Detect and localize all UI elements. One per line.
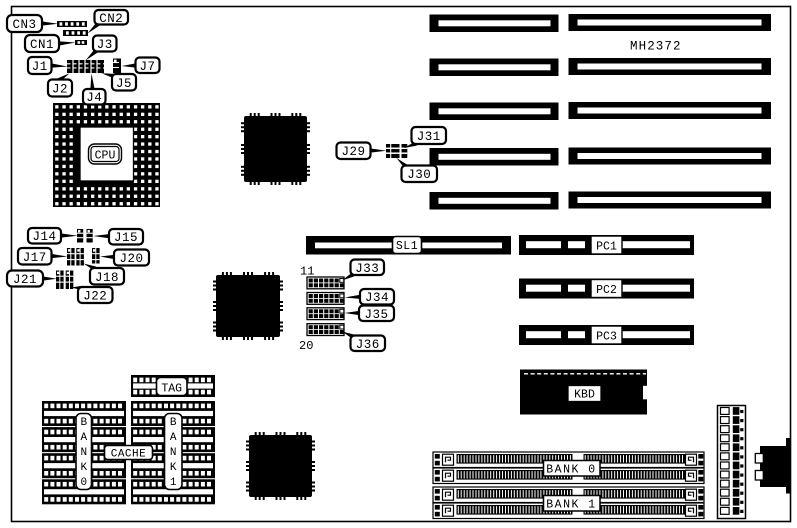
svg-text:J35: J35 [364,308,388,322]
svg-text:CN1: CN1 [30,38,54,52]
svg-text:K: K [170,462,177,474]
svg-text:20: 20 [299,339,313,353]
svg-text:J29: J29 [341,145,365,159]
svg-text:J30: J30 [407,168,431,182]
svg-text:J14: J14 [32,230,56,244]
svg-text:J15: J15 [114,231,138,245]
svg-text:PC3: PC3 [596,330,617,343]
svg-text:J31: J31 [417,130,441,144]
svg-text:J4: J4 [86,91,102,105]
svg-text:CN2: CN2 [99,12,123,26]
svg-text:J33: J33 [355,262,379,276]
svg-text:J3: J3 [97,38,113,52]
svg-text:PC1: PC1 [596,240,617,253]
svg-text:N: N [170,447,177,459]
svg-text:N: N [80,447,87,459]
svg-text:B: B [170,417,177,429]
svg-text:J7: J7 [139,60,155,74]
svg-text:J36: J36 [356,338,380,352]
svg-text:A: A [170,432,177,444]
svg-text:BANK 1: BANK 1 [546,499,596,512]
svg-text:J22: J22 [83,290,107,304]
svg-text:J34: J34 [365,291,389,305]
svg-text:0: 0 [80,477,87,489]
svg-text:KBD: KBD [574,389,595,402]
svg-text:K: K [80,462,87,474]
svg-text:SL1: SL1 [396,240,418,253]
svg-text:CACHE: CACHE [111,449,147,461]
svg-text:J2: J2 [52,83,68,97]
svg-text:CPU: CPU [95,149,116,162]
svg-text:BANK 0: BANK 0 [546,464,596,477]
svg-text:B: B [80,417,87,429]
svg-text:J1: J1 [32,60,48,74]
svg-text:A: A [80,432,87,444]
svg-text:PC2: PC2 [596,284,617,297]
svg-text:CN3: CN3 [12,18,36,32]
svg-text:J5: J5 [116,77,132,91]
svg-text:1: 1 [170,477,177,489]
svg-text:11: 11 [300,265,314,279]
svg-text:J18: J18 [95,271,119,285]
svg-text:J20: J20 [119,252,143,266]
svg-text:J21: J21 [13,273,37,287]
svg-text:TAG: TAG [161,382,182,395]
svg-text:J17: J17 [23,251,47,265]
svg-text:MH2372: MH2372 [630,40,682,54]
